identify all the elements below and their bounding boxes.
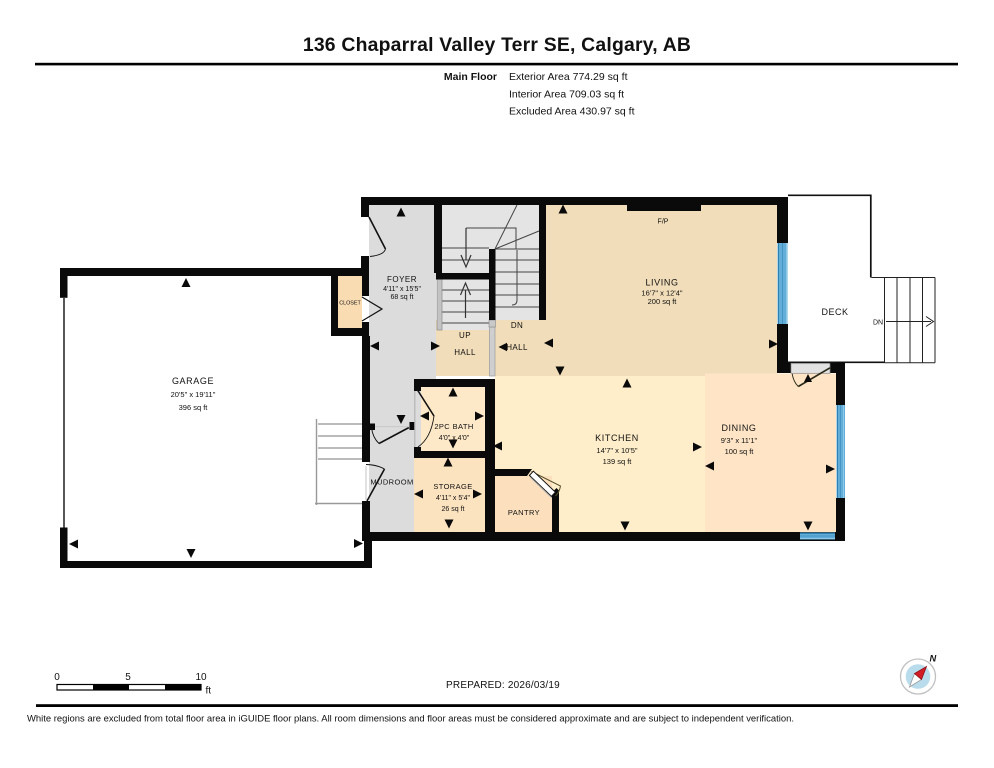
- svg-text:396 sq ft: 396 sq ft: [179, 403, 209, 412]
- svg-text:139 sq ft: 139 sq ft: [603, 457, 633, 466]
- svg-text:CLOSET: CLOSET: [339, 301, 361, 307]
- svg-text:68 sq ft: 68 sq ft: [391, 294, 414, 301]
- svg-text:5: 5: [125, 672, 131, 683]
- svg-text:STORAGE: STORAGE: [433, 482, 472, 491]
- svg-text:GARAGE: GARAGE: [172, 376, 214, 386]
- svg-text:F/P: F/P: [658, 219, 669, 226]
- svg-text:PREPARED: 2026/03/19: PREPARED: 2026/03/19: [446, 680, 560, 691]
- svg-text:HALL: HALL: [506, 343, 528, 352]
- svg-text:4'11" x 15'5": 4'11" x 15'5": [383, 286, 421, 293]
- svg-text:DN: DN: [511, 321, 523, 330]
- svg-text:26 sq ft: 26 sq ft: [442, 506, 465, 513]
- svg-text:DECK: DECK: [821, 307, 848, 317]
- svg-text:ft: ft: [206, 686, 212, 697]
- svg-text:N: N: [930, 654, 937, 664]
- svg-text:Excluded Area 430.97 sq ft: Excluded Area 430.97 sq ft: [509, 106, 635, 118]
- svg-text:UP: UP: [459, 331, 471, 340]
- svg-text:20'5" x 19'11": 20'5" x 19'11": [171, 390, 216, 399]
- svg-text:136 Chaparral Valley Terr SE,: 136 Chaparral Valley Terr SE, Calgary, A…: [303, 34, 691, 56]
- svg-text:200 sq ft: 200 sq ft: [648, 297, 678, 306]
- svg-text:100 sq ft: 100 sq ft: [725, 447, 755, 456]
- svg-text:Exterior Area 774.29 sq ft: Exterior Area 774.29 sq ft: [509, 71, 628, 83]
- svg-text:9'3" x 11'1": 9'3" x 11'1": [721, 436, 758, 445]
- svg-text:White regions are excluded fro: White regions are excluded from total fl…: [27, 714, 794, 725]
- svg-text:FOYER: FOYER: [387, 275, 417, 284]
- svg-text:HALL: HALL: [454, 348, 476, 357]
- svg-text:Main Floor: Main Floor: [444, 71, 497, 83]
- svg-text:Interior Area 709.03 sq ft: Interior Area 709.03 sq ft: [509, 88, 624, 100]
- svg-text:14'7" x 10'5": 14'7" x 10'5": [596, 446, 637, 455]
- svg-text:2PC BATH: 2PC BATH: [434, 422, 473, 431]
- svg-text:DN: DN: [873, 320, 883, 327]
- svg-text:LIVING: LIVING: [645, 278, 678, 288]
- svg-text:0: 0: [54, 672, 60, 683]
- svg-text:KITCHEN: KITCHEN: [595, 433, 639, 443]
- svg-text:4'11" x 5'4": 4'11" x 5'4": [436, 495, 470, 502]
- svg-text:DINING: DINING: [721, 423, 756, 433]
- svg-text:PANTRY: PANTRY: [508, 508, 540, 517]
- svg-text:MUDROOM: MUDROOM: [370, 478, 413, 487]
- svg-text:10: 10: [195, 672, 207, 683]
